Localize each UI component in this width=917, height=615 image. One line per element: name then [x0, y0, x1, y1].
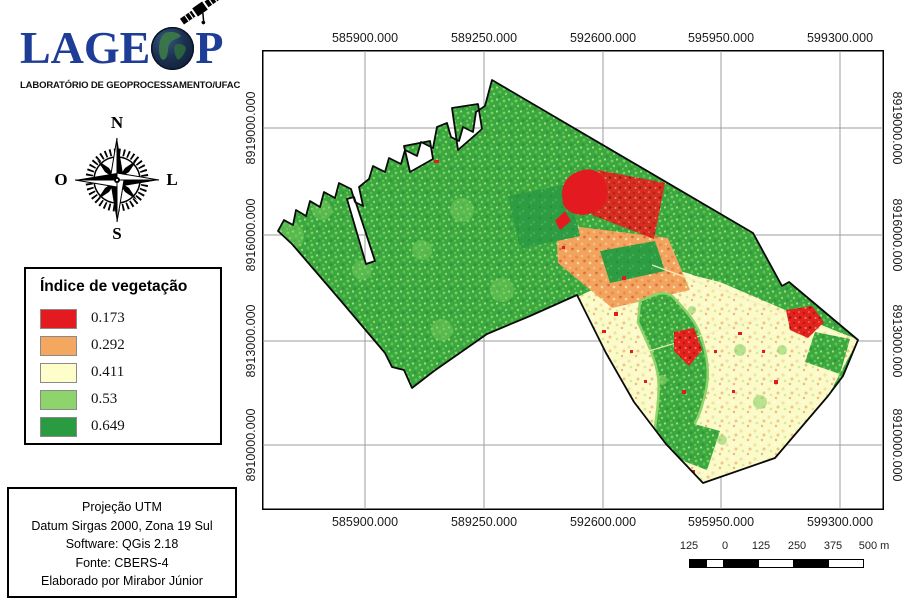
legend-label: 0.292	[91, 337, 125, 354]
logo-subtitle: LABORATÓRIO DE GEOPROCESSAMENTO/UFAC	[20, 80, 238, 91]
scale-bar-segments	[689, 559, 864, 568]
scale-label-3: 125	[752, 540, 770, 552]
x-tick-bottom-3: 592600.000	[570, 515, 636, 529]
source-line: Fonte: CBERS-4	[9, 554, 235, 573]
legend-swatch-red	[40, 309, 77, 329]
legend-label: 0.649	[91, 418, 125, 435]
credits-box: Projeção UTM Datum Sirgas 2000, Zona 19 …	[7, 487, 237, 598]
projection-line: Projeção UTM	[9, 498, 235, 517]
compass-west-label: O	[54, 170, 67, 189]
legend-label: 0.53	[91, 391, 117, 408]
logo-text-right: P	[195, 25, 223, 71]
y-tick-left-3: 8913000.000	[244, 305, 258, 378]
x-tick-top-3: 592600.000	[570, 31, 636, 45]
y-tick-left-4: 8910000.000	[244, 409, 258, 482]
x-tick-bottom-1: 585900.000	[332, 515, 398, 529]
scale-label-4: 250	[788, 540, 806, 552]
compass-east-label: L	[166, 170, 177, 189]
legend-item: 0.411	[40, 359, 220, 386]
datum-line: Datum Sirgas 2000, Zona 19 Sul	[9, 517, 235, 536]
y-tick-right-2: 8916000.000	[890, 199, 904, 272]
legend-item: 0.53	[40, 386, 220, 413]
y-tick-right-1: 8919000.000	[890, 92, 904, 165]
scale-label-1: 125	[680, 540, 698, 552]
software-line: Software: QGis 2.18	[9, 535, 235, 554]
scale-label-2: 0	[722, 540, 728, 552]
x-tick-bottom-2: 589250.000	[451, 515, 517, 529]
legend-swatch-lightgreen	[40, 390, 77, 410]
lageop-logo: LAGE P	[20, 6, 238, 90]
map-layout-page: LAGE P	[0, 0, 917, 615]
x-tick-top-1: 585900.000	[332, 31, 398, 45]
legend-item: 0.173	[40, 305, 220, 332]
globe-icon	[151, 27, 194, 70]
compass-south-label: S	[112, 224, 121, 242]
legend-item: 0.292	[40, 332, 220, 359]
logo-wordmark: LAGE P	[20, 20, 238, 76]
scale-label-6: 500 m	[859, 540, 890, 552]
x-tick-top-5: 599300.000	[807, 31, 873, 45]
scale-label-5: 375	[824, 540, 842, 552]
x-tick-bottom-4: 595950.000	[688, 515, 754, 529]
logo-text-left: LAGE	[20, 25, 150, 71]
y-tick-left-2: 8916000.000	[244, 199, 258, 272]
y-tick-right-4: 8910000.000	[890, 409, 904, 482]
y-tick-right-3: 8913000.000	[890, 305, 904, 378]
legend: Índice de vegetação 0.173 0.292 0.411 0.…	[24, 267, 222, 445]
author-line: Elaborado por Mirabor Júnior	[9, 572, 235, 591]
x-tick-top-2: 589250.000	[451, 31, 517, 45]
map-canvas	[262, 50, 884, 510]
x-tick-top-4: 595950.000	[688, 31, 754, 45]
legend-swatch-darkgreen	[40, 417, 77, 437]
legend-label: 0.411	[91, 364, 124, 381]
y-tick-left-1: 8919000.000	[244, 92, 258, 165]
legend-swatch-paleyellow	[40, 363, 77, 383]
legend-swatch-orange	[40, 336, 77, 356]
legend-item: 0.649	[40, 413, 220, 440]
satellite-icon	[170, 0, 230, 28]
legend-label: 0.173	[91, 310, 125, 327]
x-tick-bottom-5: 599300.000	[807, 515, 873, 529]
legend-title: Índice de vegetação	[40, 278, 220, 296]
compass-rose-icon: N L S O	[52, 108, 182, 242]
compass-north-label: N	[111, 113, 124, 132]
